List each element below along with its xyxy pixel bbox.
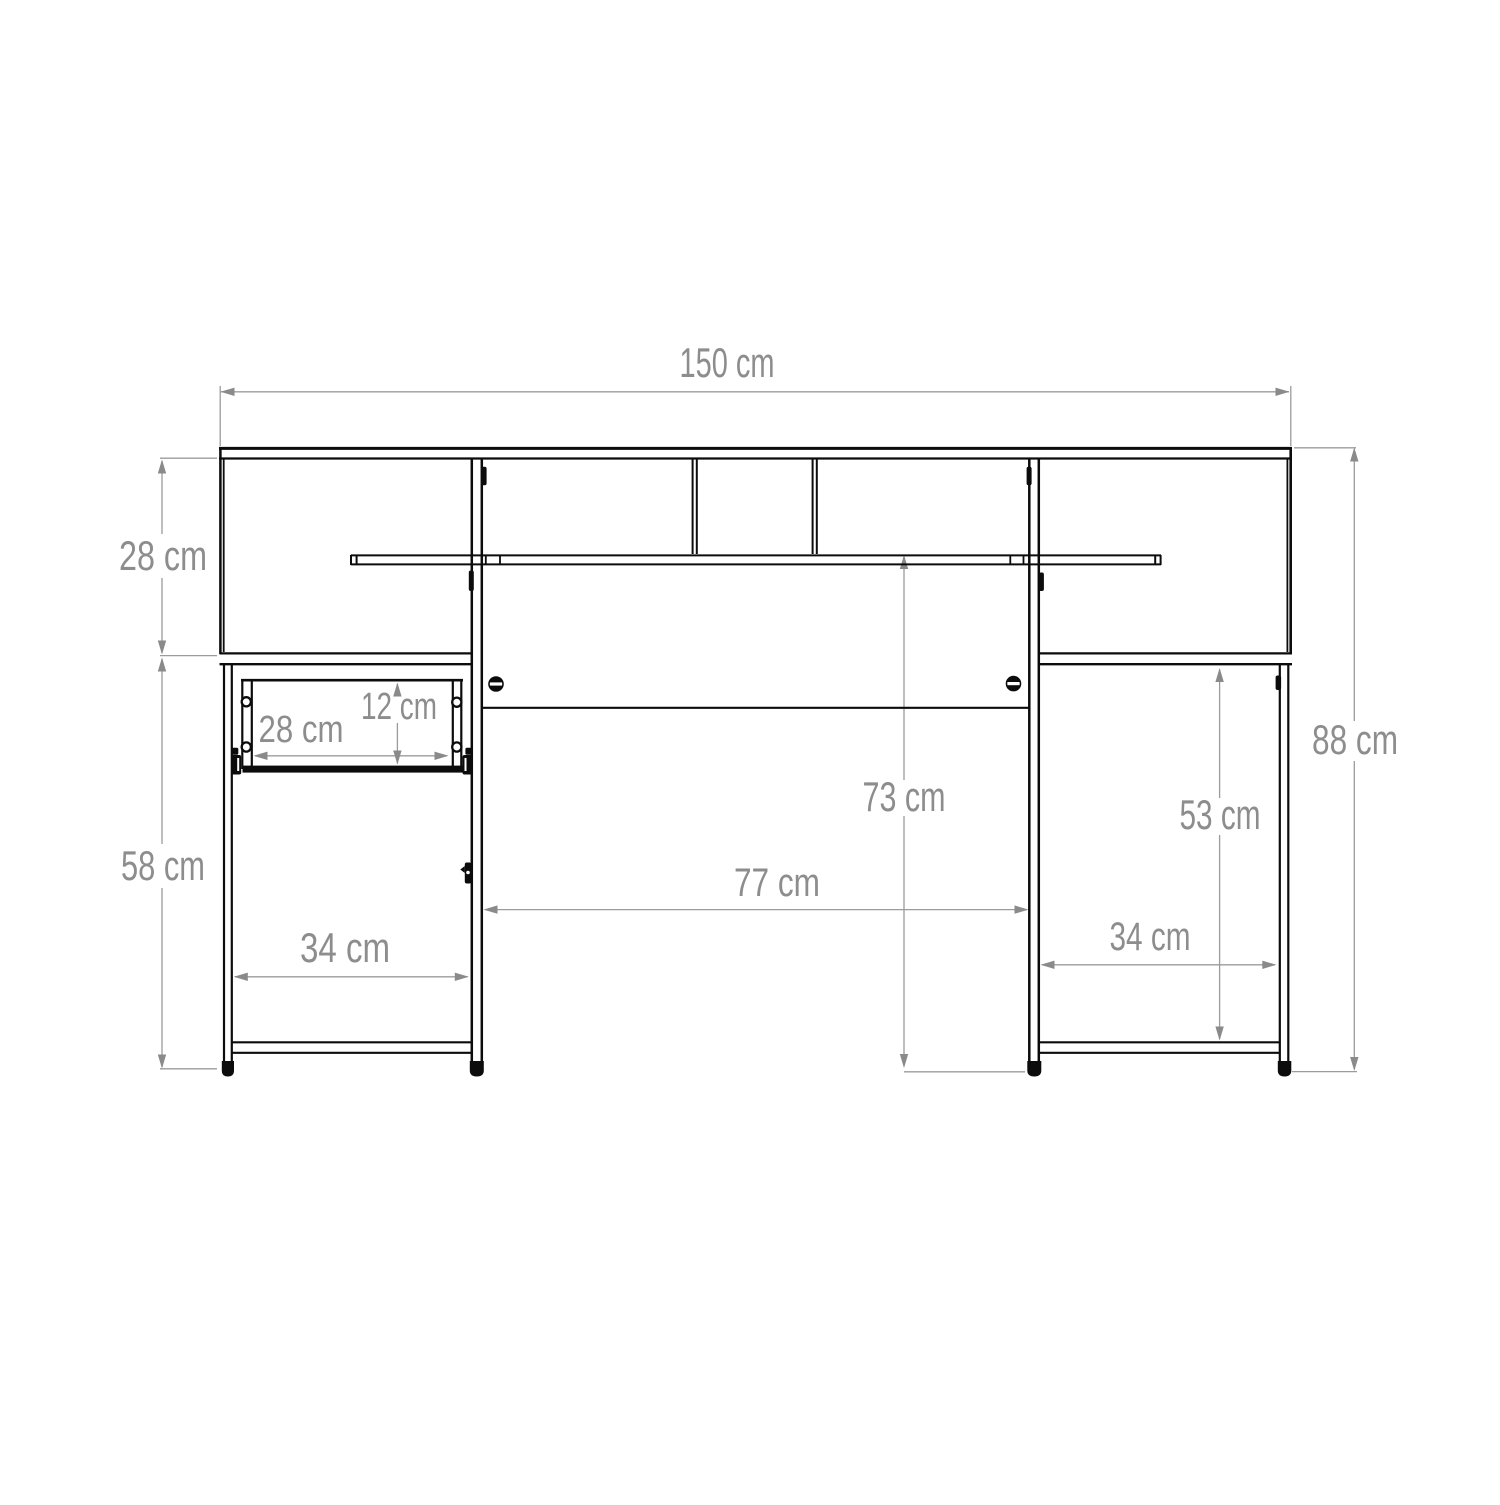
svg-text:77 cm: 77 cm [734, 861, 820, 905]
svg-text:12 cm: 12 cm [361, 686, 437, 728]
svg-text:58 cm: 58 cm [121, 842, 205, 889]
svg-text:88 cm: 88 cm [1312, 716, 1398, 763]
svg-text:28 cm: 28 cm [119, 532, 207, 579]
svg-text:34 cm: 34 cm [300, 924, 390, 971]
svg-text:28 cm: 28 cm [259, 709, 344, 751]
svg-text:73 cm: 73 cm [863, 773, 946, 820]
svg-text:150 cm: 150 cm [680, 339, 775, 386]
svg-text:53 cm: 53 cm [1180, 791, 1261, 838]
svg-text:34 cm: 34 cm [1110, 915, 1191, 959]
